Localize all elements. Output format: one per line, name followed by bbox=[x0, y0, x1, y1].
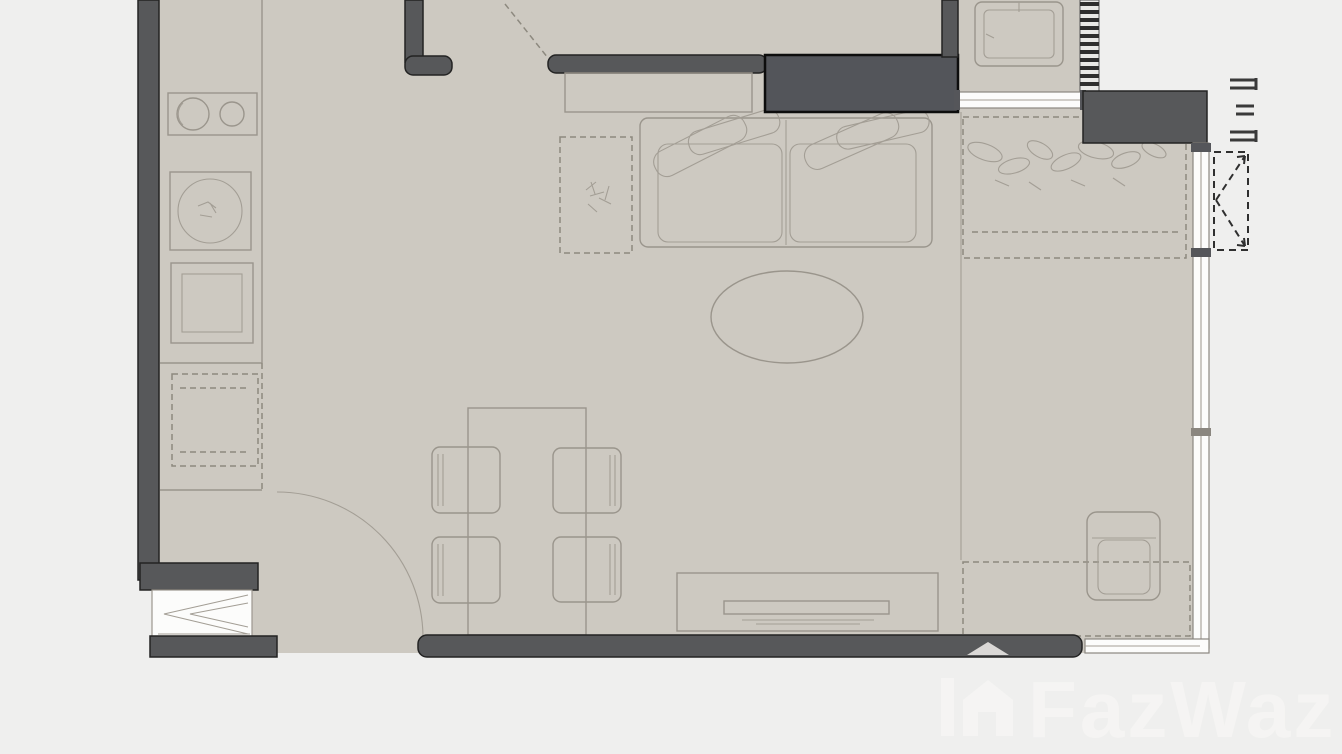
entry-chevron-door bbox=[152, 590, 252, 638]
watermark-one-glyph bbox=[941, 678, 954, 736]
wall-stub-right bbox=[942, 0, 958, 57]
floor-plan-canvas: FazWaz bbox=[0, 0, 1342, 754]
wall-top-stub bbox=[405, 0, 423, 62]
window-band-bottom bbox=[1085, 639, 1209, 653]
wall-left bbox=[138, 0, 159, 580]
window-band-top bbox=[954, 90, 1086, 110]
wardrobe-solid-dark bbox=[765, 55, 958, 112]
wall-entry-cap bbox=[140, 563, 258, 590]
floor-plan-drawing: FazWaz bbox=[0, 0, 1342, 754]
watermark-text: FazWaz bbox=[1028, 665, 1336, 754]
wall-top-right bbox=[1083, 91, 1207, 143]
window-band-right bbox=[1191, 143, 1211, 648]
wall-partition-bar bbox=[548, 55, 767, 73]
wall-top-stub-foot bbox=[405, 56, 452, 75]
louver-hatch-strip bbox=[1080, 0, 1099, 92]
wall-bottom-left bbox=[150, 636, 277, 657]
